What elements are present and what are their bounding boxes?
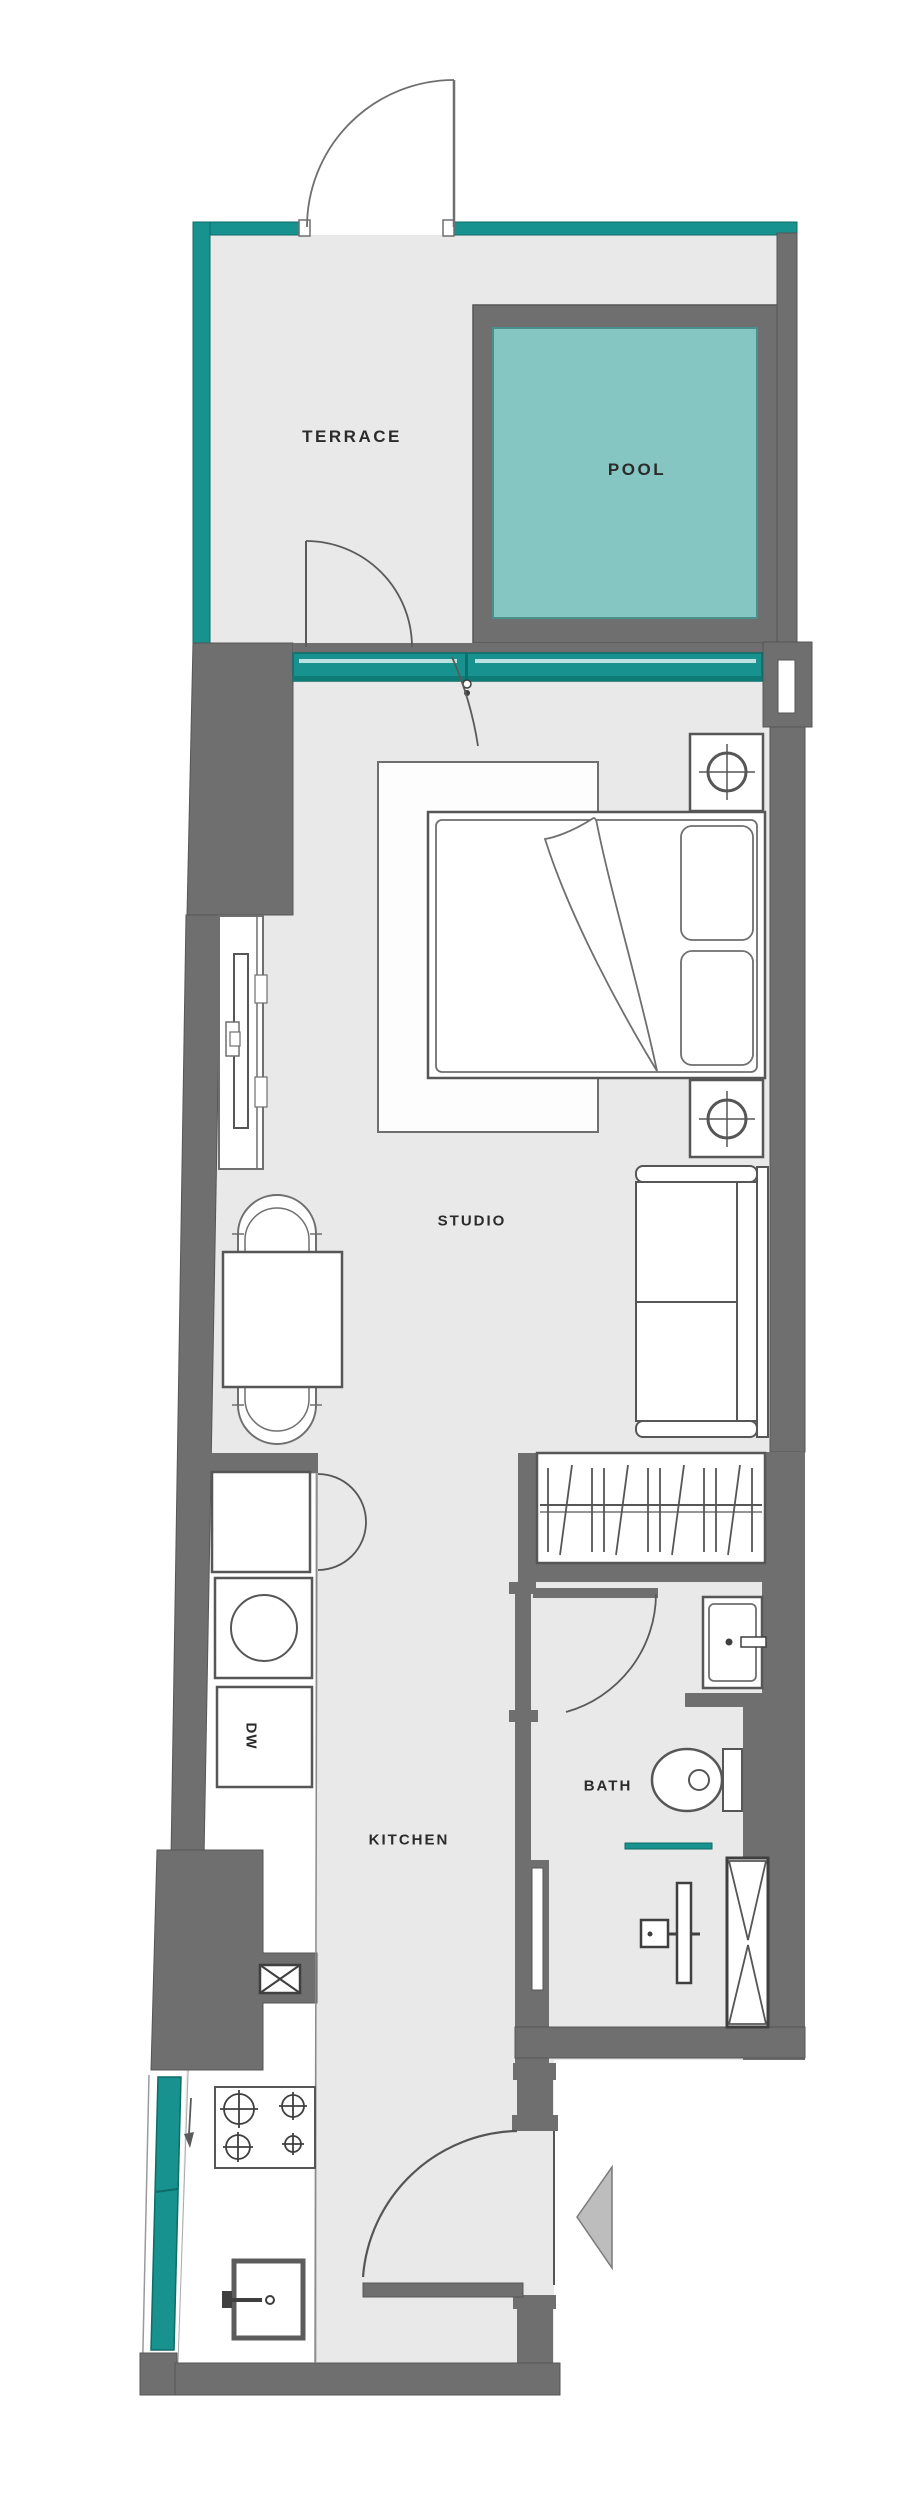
bath-label: BATH <box>584 1778 633 1795</box>
wall-bath-bottom <box>515 2027 805 2058</box>
shower-panel <box>677 1883 691 1983</box>
sink-cabinet <box>215 1578 312 1678</box>
sofa <box>636 1166 768 1437</box>
door-jamb <box>299 220 310 236</box>
terrace-label: TERRACE <box>302 427 402 447</box>
outer-wall-right-mid <box>770 727 805 1452</box>
door-jamb <box>509 1710 538 1722</box>
bed <box>428 812 765 1078</box>
wall-bottom-band <box>175 2363 560 2395</box>
nightstand-bottom <box>690 1080 763 1157</box>
shower-glass-panel <box>625 1843 712 1849</box>
kitchen-sink <box>222 2261 303 2338</box>
wall-under-vanity <box>685 1693 773 1707</box>
sofa-seat <box>636 1302 737 1421</box>
faucet-icon <box>726 1639 733 1646</box>
outer-edge-line <box>142 2075 149 2392</box>
wall-kitchen-stub <box>204 1453 318 1473</box>
outer-wall-right-vanity <box>762 1582 805 1707</box>
wall-entry-pier <box>517 2080 553 2117</box>
basin <box>231 1595 297 1661</box>
studio-label: STUDIO <box>438 1213 507 1230</box>
door-jamb <box>512 2115 558 2131</box>
kitchen-window <box>151 2077 181 2350</box>
door-jamb <box>513 2063 556 2080</box>
wardrobe <box>537 1453 765 1563</box>
wall-closet-left <box>518 1453 537 1582</box>
sofa-backrest <box>737 1182 757 1421</box>
wall-block-left-upper <box>187 643 293 915</box>
toilet-tank <box>723 1749 742 1811</box>
wall-entry-pier-lower <box>517 2309 553 2367</box>
faucet-icon <box>266 2296 274 2304</box>
terrace-top-window-wall-right <box>454 222 797 235</box>
entry-door-leaf <box>363 2283 523 2297</box>
dining-table <box>223 1252 342 1387</box>
pillow <box>681 826 753 940</box>
tv-mount <box>230 1032 240 1046</box>
dishwasher <box>217 1687 312 1787</box>
outer-wall-right-top <box>777 233 797 645</box>
shaft-box <box>727 1858 768 2027</box>
nightstand-top <box>690 734 763 811</box>
wall-bath-door-header <box>533 1588 658 1598</box>
terrace-left-window-wall <box>193 222 210 643</box>
wall-pier-slot <box>778 660 795 713</box>
outer-wall-right-closet <box>765 1452 805 1582</box>
toilet <box>652 1749 742 1811</box>
toilet-bowl <box>652 1749 722 1811</box>
dishwasher-label: DW <box>243 1723 260 1750</box>
floor-plan-drawing <box>0 0 915 2495</box>
wall-bottom-left-block <box>140 2353 177 2395</box>
wall-bath-corridor-left <box>515 1593 531 1860</box>
faucet-icon <box>741 1637 766 1647</box>
wall-closet-bottom <box>518 1563 768 1582</box>
tv-console <box>219 916 267 1169</box>
door-jamb <box>443 220 454 236</box>
sofa-seat <box>636 1182 737 1302</box>
kitchen-label: KITCHEN <box>369 1832 450 1849</box>
stove <box>215 2087 315 2168</box>
floor-plan: TERRACE POOL STUDIO BATH KITCHEN DW <box>0 0 915 2495</box>
wall-slot <box>532 1868 543 1990</box>
door-jamb <box>509 1582 536 1594</box>
sofa-armrest <box>636 1421 757 1437</box>
pillow <box>681 951 753 1065</box>
vanity-sink <box>703 1597 766 1688</box>
sofa-armrest <box>636 1166 757 1182</box>
pool-label: POOL <box>608 460 666 480</box>
terrace-entry-door <box>307 80 454 227</box>
